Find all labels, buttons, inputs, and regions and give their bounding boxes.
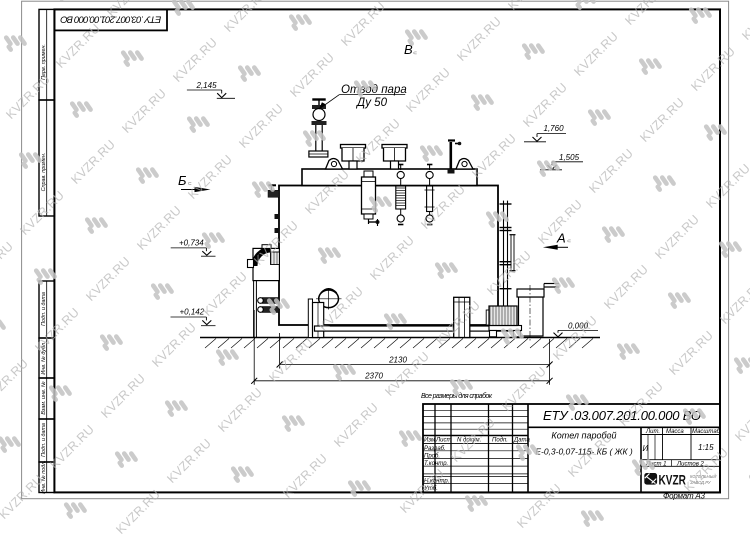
svg-text:2370: 2370 (364, 372, 383, 381)
svg-text:Подп. и дата: Подп. и дата (41, 292, 47, 326)
svg-text:Лит.: Лит. (645, 429, 660, 435)
svg-text:2130: 2130 (388, 356, 407, 365)
svg-text:Б: Б (178, 173, 187, 188)
svg-text:2,145: 2,145 (196, 81, 218, 90)
svg-text:Лист: Лист (435, 438, 451, 444)
svg-text:Подп. и дата: Подп. и дата (41, 423, 47, 457)
svg-text:1:15: 1:15 (698, 443, 714, 452)
svg-text:⊂: ⊂ (413, 51, 417, 57)
svg-text:⊂: ⊂ (567, 239, 571, 245)
svg-text:Формат А3: Формат А3 (663, 492, 706, 501)
svg-text:Подп.: Подп. (492, 438, 508, 444)
svg-text:1,760: 1,760 (544, 124, 565, 133)
